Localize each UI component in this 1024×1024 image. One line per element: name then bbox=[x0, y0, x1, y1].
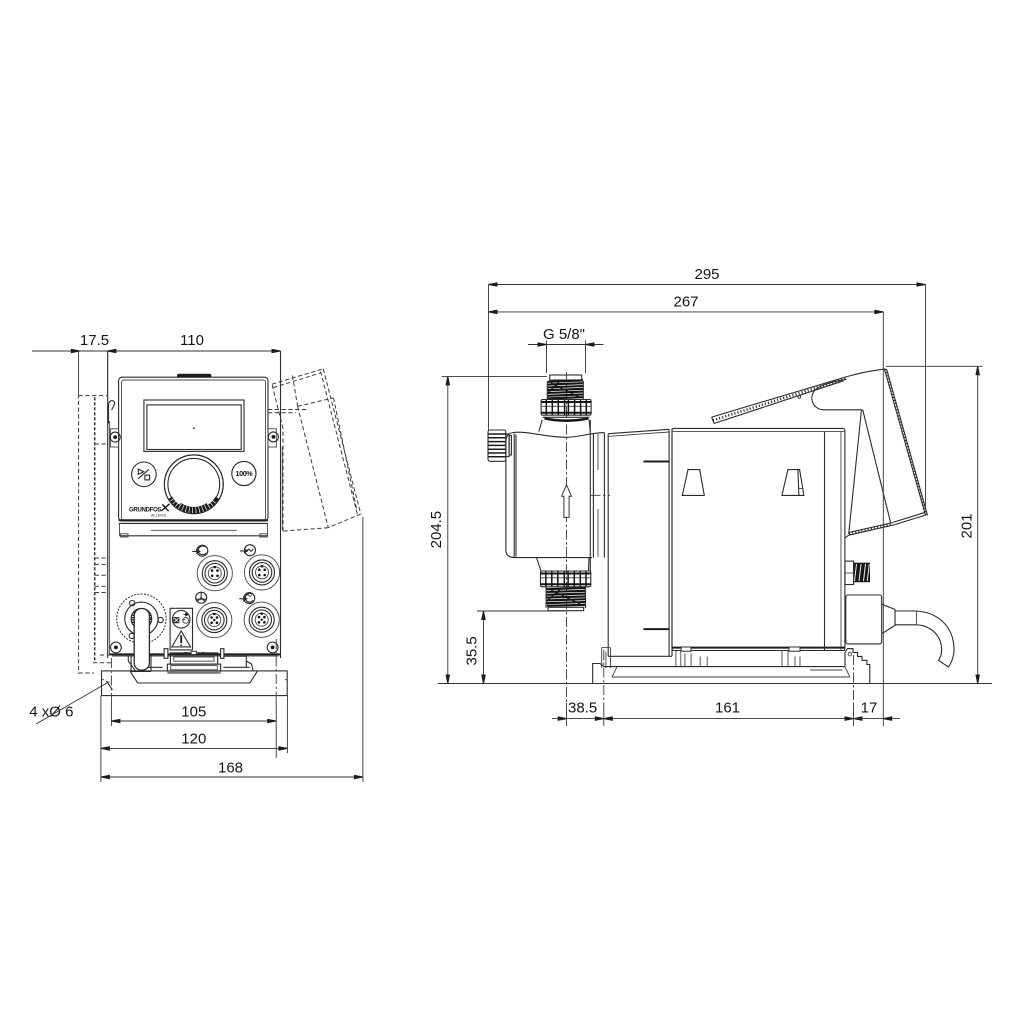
svg-text:G 5/8": G 5/8" bbox=[543, 326, 585, 343]
svg-text:201: 201 bbox=[959, 513, 976, 538]
svg-text:295: 295 bbox=[694, 266, 719, 283]
svg-text:17: 17 bbox=[861, 700, 878, 717]
svg-text:GRUNDFOS: GRUNDFOS bbox=[129, 506, 161, 513]
svg-text:17.5: 17.5 bbox=[80, 332, 109, 349]
svg-text:38.5: 38.5 bbox=[568, 700, 597, 717]
svg-text:100%: 100% bbox=[236, 469, 254, 478]
svg-text:105: 105 bbox=[181, 703, 206, 720]
svg-text:120: 120 bbox=[181, 731, 206, 748]
svg-text:267: 267 bbox=[673, 294, 698, 311]
svg-text:204.5: 204.5 bbox=[428, 511, 445, 549]
svg-text:161: 161 bbox=[715, 700, 740, 717]
svg-text:110: 110 bbox=[180, 332, 204, 349]
svg-text:ALLDOS: ALLDOS bbox=[151, 513, 166, 517]
svg-text:168: 168 bbox=[218, 759, 243, 776]
svg-text:35.5: 35.5 bbox=[463, 636, 480, 665]
